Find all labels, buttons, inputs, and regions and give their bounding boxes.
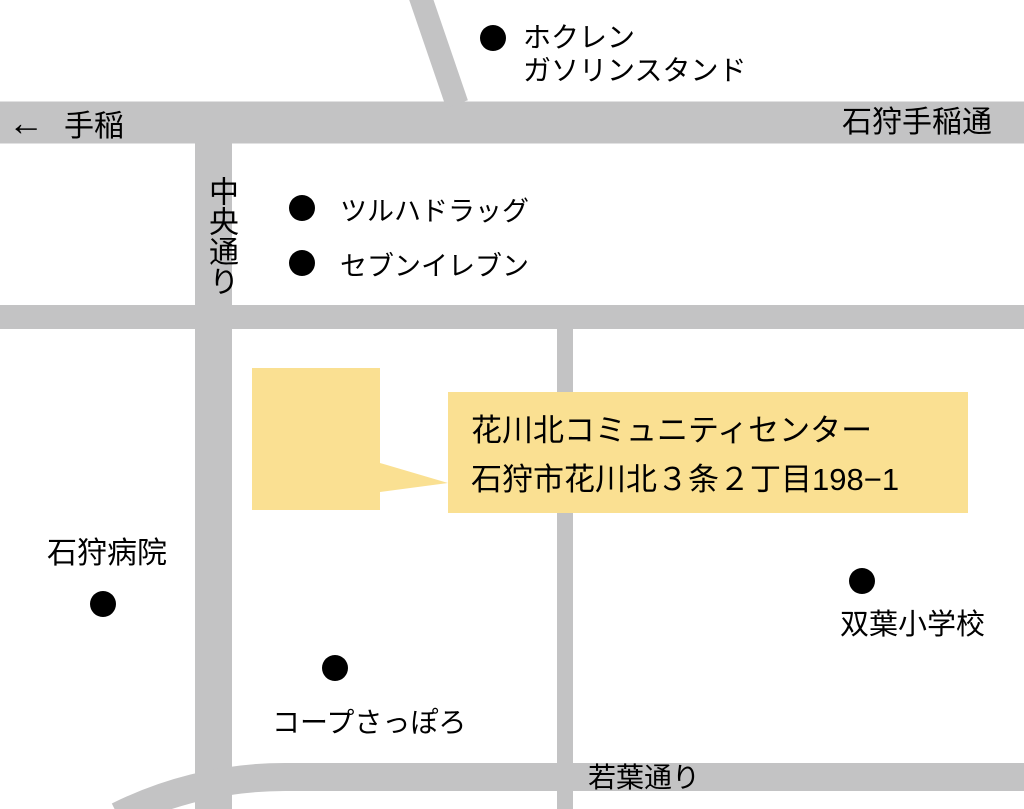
access-map: ← 手稲 石狩手稲通 中央通り 若葉通り ホクレン ガソリンスタンド ツルハドラ… <box>0 0 1024 809</box>
coop-sapporo-label: コープさっぽろ <box>272 701 466 741</box>
ishikari-hospital-dot <box>90 591 116 617</box>
callout-address: 石狩市花川北３条２丁目198−1 <box>471 455 968 504</box>
road-label-ishikari-teine-dori: 石狩手稲通 <box>842 97 992 141</box>
community-center-building <box>252 368 380 510</box>
road-diagonal-north <box>420 0 457 104</box>
road-label-chuo-dori: 中央通り <box>198 176 242 296</box>
tsuruha-dot <box>289 195 315 221</box>
seven-eleven-dot <box>289 250 315 276</box>
hokuren-label-line2: ガソリンスタンド <box>523 54 746 87</box>
callout-title: 花川北コミュニティセンター <box>471 406 968 455</box>
road-label-teine: ← 手稲 <box>8 101 124 145</box>
hokuren-label: ホクレン ガソリンスタンド <box>523 21 746 87</box>
coop-sapporo-dot <box>322 655 348 681</box>
futaba-school-label: 双葉小学校 <box>840 601 985 643</box>
ishikari-hospital-label: 石狩病院 <box>47 528 167 572</box>
hokuren-label-line1: ホクレン <box>523 21 746 54</box>
left-arrow-icon: ← <box>8 105 44 141</box>
seven-eleven-label: セブンイレブン <box>340 245 529 284</box>
tsuruha-label: ツルハドラッグ <box>340 190 529 229</box>
callout-text: 花川北コミュニティセンター 石狩市花川北３条２丁目198−1 <box>448 392 968 513</box>
road-label-teine-text: 手稲 <box>64 101 124 145</box>
road-label-wakaba-dori: 若葉通り <box>588 756 700 796</box>
hokuren-dot <box>480 25 506 51</box>
callout-pointer <box>380 463 448 492</box>
futaba-school-dot <box>849 568 875 594</box>
